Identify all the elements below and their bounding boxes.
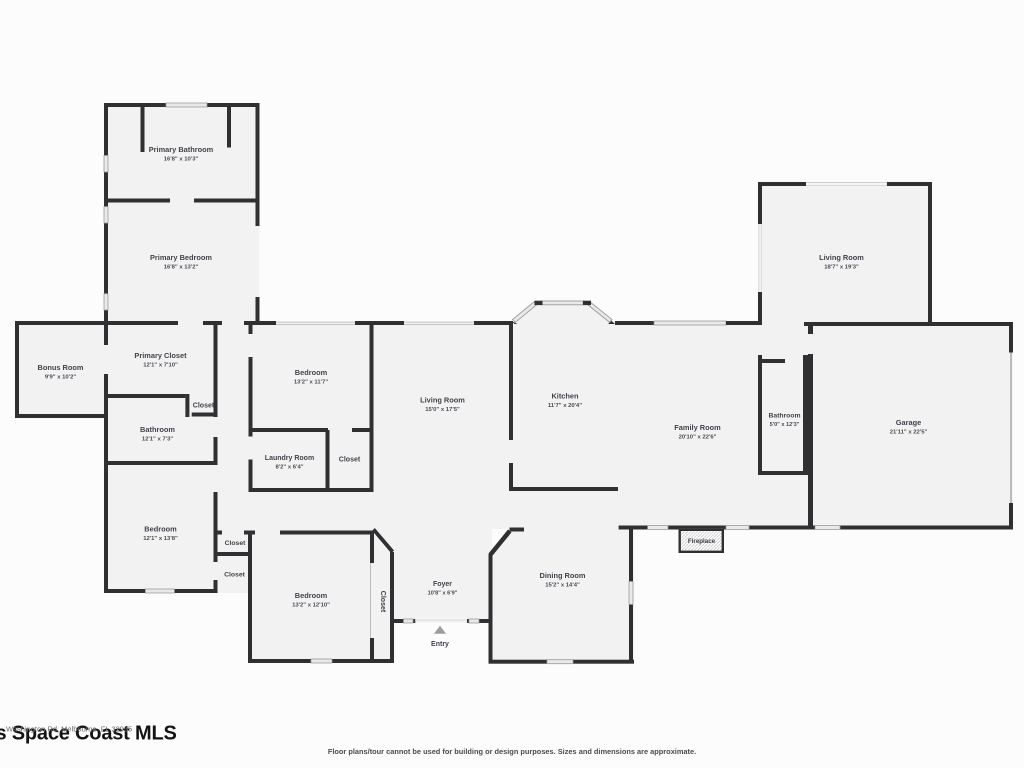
svg-text:12'1" x 7'10": 12'1" x 7'10" [143,362,178,368]
svg-text:Bedroom: Bedroom [295,591,328,600]
svg-text:Dining Room: Dining Room [540,571,586,580]
svg-text:10'8" x 6'9": 10'8" x 6'9" [428,590,458,596]
svg-text:11'7" x 20'4": 11'7" x 20'4" [548,403,582,409]
svg-text:Bonus Room: Bonus Room [38,363,84,372]
svg-text:Foyer: Foyer [433,581,452,588]
svg-text:16'8" x 10'3": 16'8" x 10'3" [164,156,199,162]
svg-text:13'2" x 12'10": 13'2" x 12'10" [292,602,330,608]
svg-text:20'10" x 22'6": 20'10" x 22'6" [679,434,717,440]
svg-text:Bathroom: Bathroom [140,425,175,434]
svg-text:Garage: Garage [896,418,921,427]
svg-text:21'11" x 22'5": 21'11" x 22'5" [890,429,928,435]
svg-text:Family Room: Family Room [674,423,721,432]
svg-text:Living Room: Living Room [819,253,864,262]
svg-text:Closet: Closet [193,403,215,410]
svg-text:Primary Closet: Primary Closet [134,351,187,360]
svg-text:Bathroom: Bathroom [768,413,800,420]
svg-text:Closet: Closet [224,572,246,579]
svg-text:Fireplace: Fireplace [688,538,716,545]
svg-text:Laundry Room: Laundry Room [265,455,314,462]
svg-text:Bedroom: Bedroom [144,525,177,534]
svg-text:Kitchen: Kitchen [551,392,579,401]
svg-text:Washington Rd, Melbourne, FL 3: Washington Rd, Melbourne, FL 32935 [6,725,132,734]
svg-text:Closet: Closet [339,457,361,464]
svg-text:12'1" x 13'8": 12'1" x 13'8" [143,536,178,542]
svg-text:5'0" x 12'3": 5'0" x 12'3" [770,422,800,428]
svg-text:13'2" x 11'7": 13'2" x 11'7" [294,379,328,385]
svg-text:9'9" x 10'2": 9'9" x 10'2" [45,374,77,380]
svg-text:15'2" x 14'4": 15'2" x 14'4" [545,582,580,588]
svg-text:Primary Bedroom: Primary Bedroom [150,253,212,262]
svg-text:18'7" x 19'3": 18'7" x 19'3" [824,264,859,270]
svg-text:Bedroom: Bedroom [295,368,328,377]
svg-text:Closet: Closet [379,591,386,613]
svg-text:8'2" x 6'4": 8'2" x 6'4" [275,464,303,470]
svg-text:Living Room: Living Room [420,396,465,405]
svg-text:Primary Bathroom: Primary Bathroom [149,145,214,154]
svg-text:Floor plans/tour cannot be use: Floor plans/tour cannot be used for buil… [328,747,696,756]
svg-text:12'1" x 7'3": 12'1" x 7'3" [142,436,174,442]
svg-text:15'0" x 17'5": 15'0" x 17'5" [425,407,460,413]
svg-text:Entry: Entry [431,641,449,648]
svg-text:Closet: Closet [225,540,247,547]
svg-text:16'8" x 13'2": 16'8" x 13'2" [164,264,199,270]
